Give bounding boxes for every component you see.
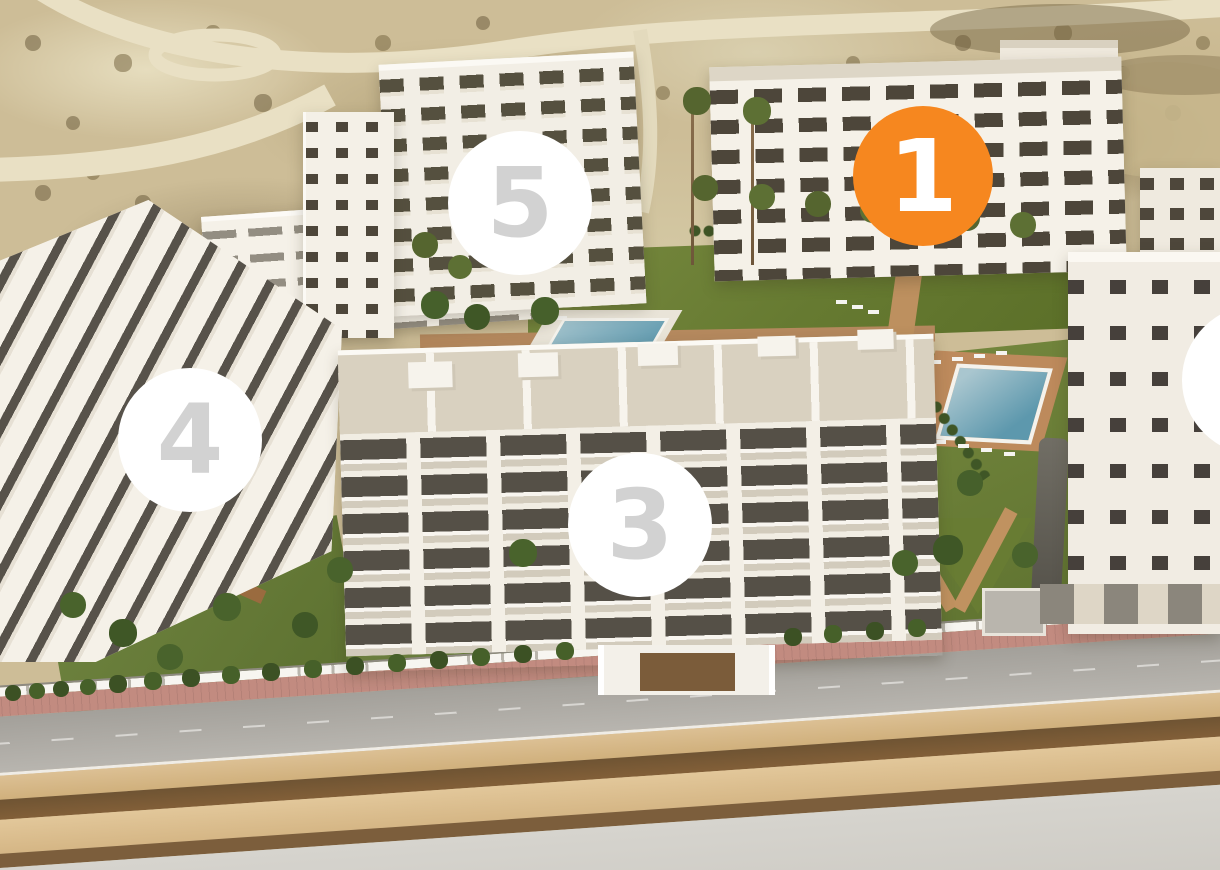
palm-trunk [691,100,694,265]
residential-complex-site-plan: 1 3 4 5 [0,0,1220,870]
main-entrance-gate [598,645,775,695]
right-tower [1068,252,1220,634]
gate-door [640,653,735,691]
marker-4-label: 4 [157,384,224,496]
marker-1-label: 1 [888,118,958,235]
palm-trunk [751,110,754,265]
street-trees [0,0,6,6]
building-marker-1[interactable]: 1 [853,106,993,246]
marker-5-label: 5 [487,147,554,259]
building-5-tower [303,112,394,338]
rooftop-box [638,343,679,366]
garage-gate [982,588,1046,636]
rooftop-box [408,361,453,388]
building-marker-4[interactable]: 4 [118,368,262,512]
rooftop-box [857,329,894,350]
building-marker-5[interactable]: 5 [448,131,592,275]
garage-wall [1040,584,1220,624]
marker-3-label: 3 [607,469,674,581]
rooftop-box [518,352,559,377]
building-marker-3[interactable]: 3 [568,453,712,597]
rooftop-box [757,336,796,357]
